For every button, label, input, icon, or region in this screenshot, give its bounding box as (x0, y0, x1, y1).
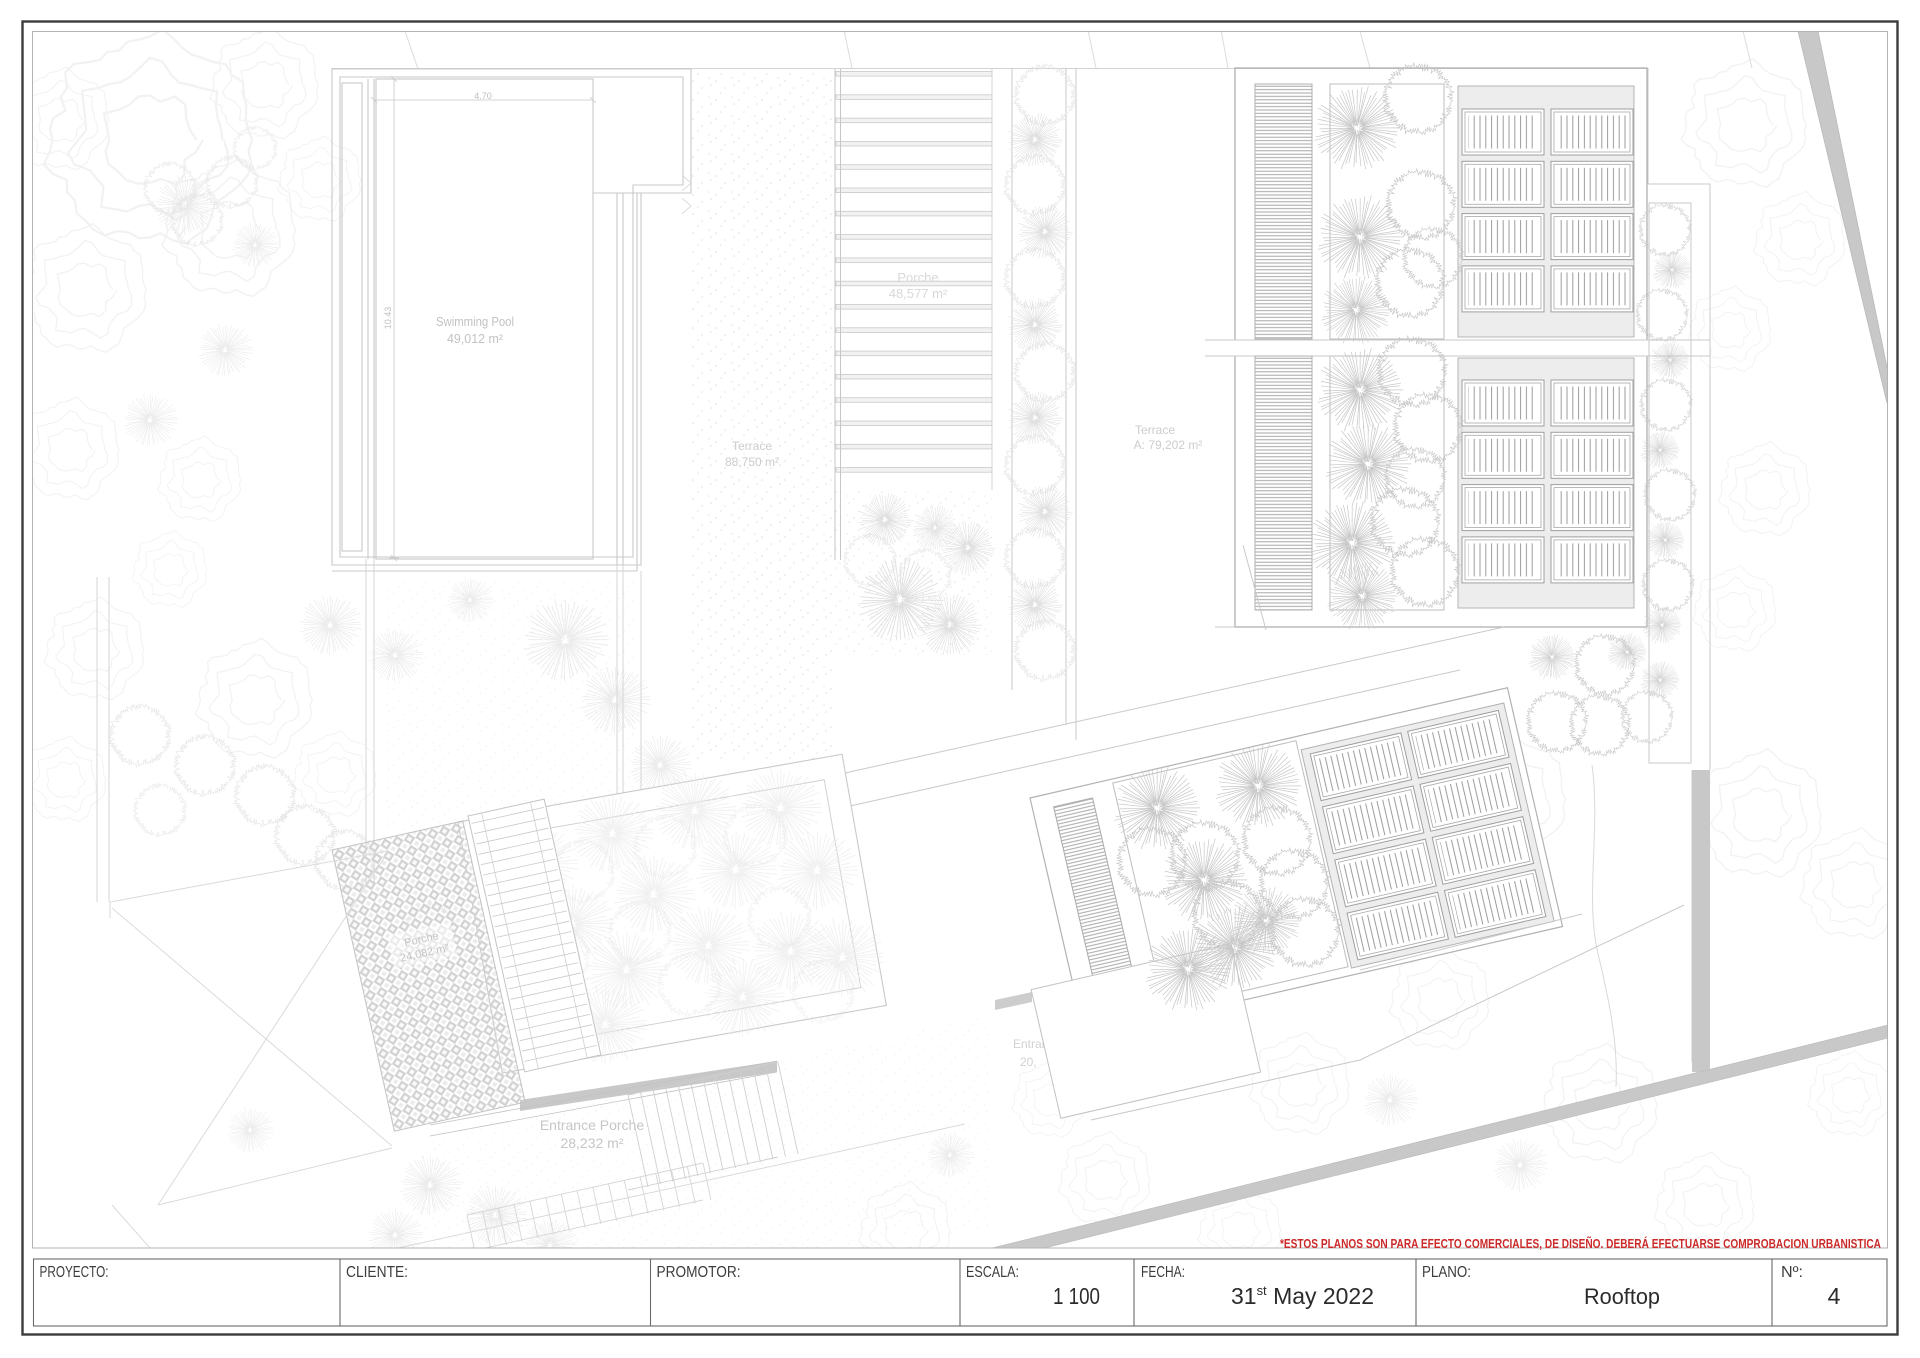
svg-text:88,750 m²: 88,750 m² (725, 455, 779, 469)
svg-text:10.43: 10.43 (383, 307, 393, 330)
svg-text:Rooftop: Rooftop (1584, 1284, 1660, 1309)
svg-text:ESCALA:: ESCALA: (966, 1264, 1019, 1281)
svg-text:Swimming Pool: Swimming Pool (436, 314, 514, 329)
svg-text:49,012 m²: 49,012 m² (447, 331, 504, 346)
svg-text:CLIENTE:: CLIENTE: (346, 1264, 408, 1281)
svg-text:PLANO:: PLANO: (1422, 1264, 1471, 1281)
svg-text:PROYECTO:: PROYECTO: (40, 1264, 109, 1281)
svg-text:20,: 20, (1020, 1055, 1037, 1069)
svg-text:1 100: 1 100 (1053, 1283, 1100, 1309)
svg-text:4.70: 4.70 (474, 91, 492, 101)
svg-text:Terrace: Terrace (1135, 423, 1175, 437)
svg-text:Entrance Porche: Entrance Porche (540, 1117, 644, 1133)
svg-text:48,577 m²: 48,577 m² (889, 286, 948, 301)
svg-text:*ESTOS PLANOS SON PARA EFECTO: *ESTOS PLANOS SON PARA EFECTO COMERCIALE… (1280, 1236, 1881, 1251)
svg-text:4: 4 (1828, 1283, 1841, 1309)
svg-text:Porche: Porche (897, 270, 938, 285)
svg-text:31st May 2022: 31st May 2022 (1231, 1283, 1374, 1309)
svg-text:Nº:: Nº: (1781, 1264, 1803, 1281)
svg-text:28,232 m²: 28,232 m² (560, 1135, 623, 1151)
svg-text:Terrace: Terrace (732, 439, 772, 453)
svg-text:FECHA:: FECHA: (1141, 1264, 1185, 1281)
svg-text:PROMOTOR:: PROMOTOR: (657, 1264, 741, 1281)
svg-text:A: 79,202 m²: A: 79,202 m² (1134, 438, 1203, 452)
